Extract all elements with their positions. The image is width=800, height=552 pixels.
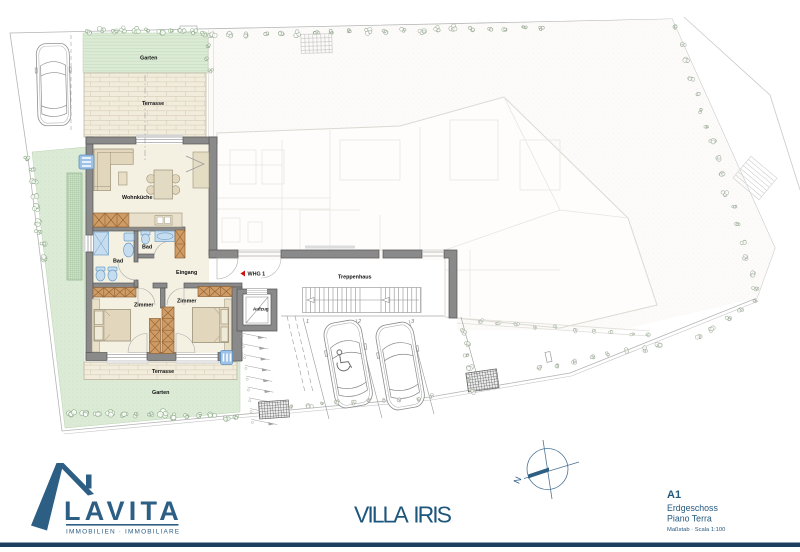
svg-text:Bad: Bad: [113, 259, 123, 265]
svg-text:Treppenhaus: Treppenhaus: [338, 275, 372, 281]
svg-text:Terrasse: Terrasse: [142, 101, 164, 107]
svg-text:A1: A1: [667, 489, 681, 501]
svg-text:Garten: Garten: [140, 56, 157, 62]
svg-text:Terrasse: Terrasse: [152, 369, 174, 375]
svg-text:IMMOBILIEN · IMMOBILIARE: IMMOBILIEN · IMMOBILIARE: [66, 529, 180, 536]
svg-text:Eingang: Eingang: [176, 270, 197, 276]
svg-text:Zimmer: Zimmer: [177, 299, 197, 305]
svg-text:Aufzug: Aufzug: [253, 307, 269, 312]
svg-text:WHG 1: WHG 1: [248, 272, 266, 278]
svg-text:VILLA IRIS: VILLA IRIS: [354, 502, 452, 528]
svg-text:Zimmer: Zimmer: [134, 303, 154, 309]
svg-text:Maßstab · Scala 1:100: Maßstab · Scala 1:100: [667, 527, 725, 533]
svg-text:1: 1: [306, 319, 309, 325]
svg-text:LAVITA: LAVITA: [64, 496, 183, 526]
svg-text:Bad: Bad: [142, 245, 152, 251]
svg-text:Wohnküche: Wohnküche: [122, 195, 152, 201]
svg-text:Erdgeschoss: Erdgeschoss: [667, 503, 718, 513]
svg-text:Garten: Garten: [152, 390, 169, 396]
svg-text:Piano Terra: Piano Terra: [667, 514, 712, 524]
